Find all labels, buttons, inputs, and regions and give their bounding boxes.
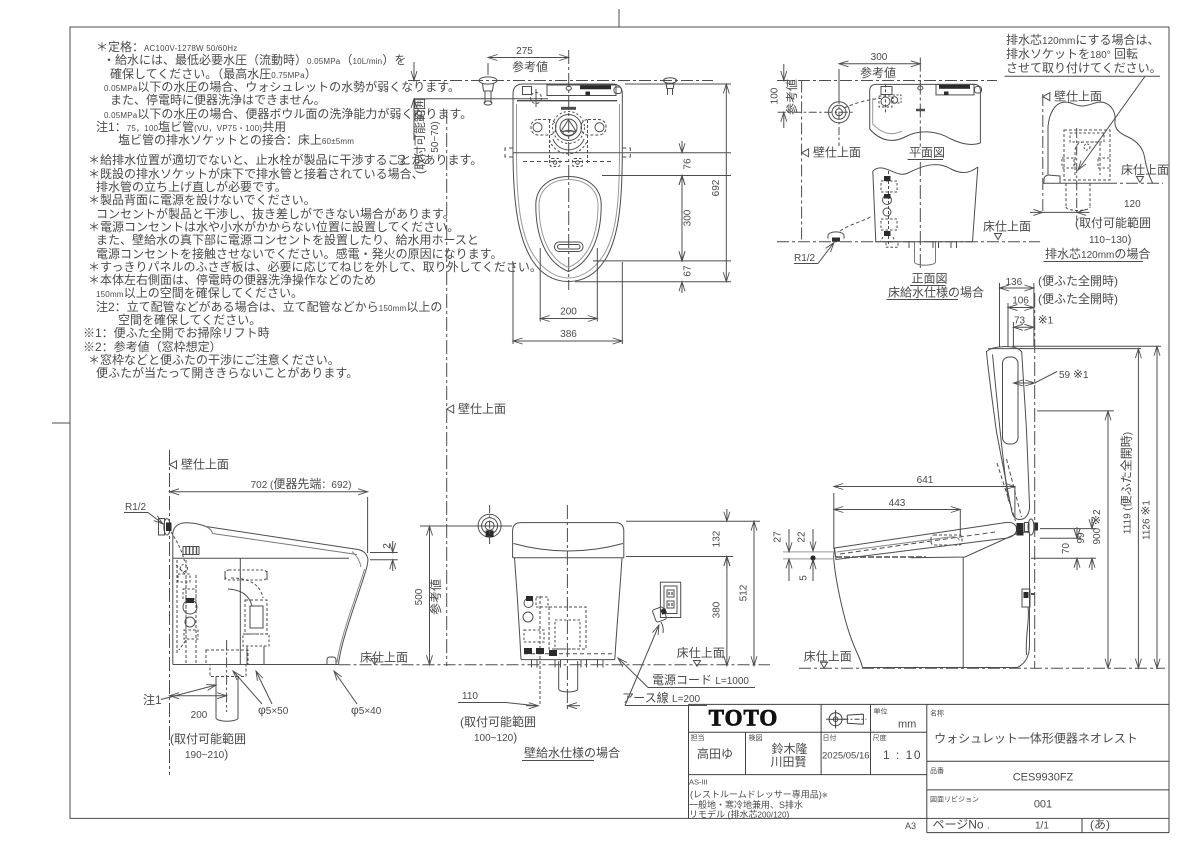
svg-text:(あ): (あ)	[1090, 818, 1110, 832]
svg-text:190~210): 190~210)	[185, 747, 228, 761]
svg-text:100~120): 100~120)	[474, 730, 517, 744]
svg-text:70: 70	[1061, 543, 1072, 555]
svg-text:50~70): 50~70)	[430, 121, 441, 152]
svg-text:参考値: 参考値	[428, 579, 443, 615]
svg-text:リモデル (排水芯200/120): リモデル (排水芯200/120)	[689, 809, 789, 820]
svg-text:電源コード L=1000: 電源コード L=1000	[652, 673, 749, 687]
svg-text:443: 443	[889, 498, 906, 509]
svg-text:mm: mm	[898, 719, 916, 731]
svg-text:AS-III: AS-III	[689, 778, 708, 787]
svg-text:参考値: 参考値	[512, 59, 548, 74]
svg-text:床仕上面: 床仕上面	[677, 646, 725, 660]
svg-text:2025/05/16: 2025/05/16	[822, 751, 870, 762]
svg-text:単位: 単位	[874, 707, 888, 716]
svg-text:1119 (便ふた全開時): 1119 (便ふた全開時)	[1119, 432, 1134, 534]
svg-text:品番: 品番	[930, 767, 944, 775]
svg-text:φ5×50: φ5×50	[258, 703, 289, 717]
svg-text:排水芯120mmの場合: 排水芯120mmの場合	[1045, 246, 1150, 261]
svg-text:ページNo .: ページNo .	[933, 818, 990, 832]
svg-text:A3: A3	[905, 821, 916, 831]
svg-text:TOTO: TOTO	[709, 706, 779, 731]
svg-text:500: 500	[414, 588, 425, 605]
svg-text:(レストルームドレッサー専用品)※: (レストルームドレッサー専用品)※	[690, 789, 828, 800]
svg-text:99: 99	[1076, 532, 1087, 544]
svg-text:R1/2: R1/2	[125, 502, 147, 513]
svg-text:73: 73	[1014, 316, 1026, 327]
svg-text:110~130): 110~130)	[1089, 232, 1131, 246]
svg-text:512: 512	[739, 584, 750, 601]
svg-text:27: 27	[773, 531, 784, 543]
svg-text:川田賢: 川田賢	[771, 755, 807, 769]
svg-text:(取付可能範囲: (取付可能範囲	[170, 731, 246, 746]
svg-text:5: 5	[799, 575, 810, 581]
svg-text:検図: 検図	[749, 733, 763, 742]
svg-text:図面リビジョン: 図面リビジョン	[930, 794, 979, 803]
svg-text:22: 22	[797, 531, 808, 543]
svg-text:702 (便器先端：692): 702 (便器先端：692)	[251, 477, 352, 491]
svg-text:641: 641	[917, 475, 934, 486]
svg-text:200: 200	[191, 710, 208, 721]
svg-text:200: 200	[560, 307, 577, 318]
svg-text:参考値: 参考値	[860, 65, 896, 80]
svg-text:一般地・寒冷地兼用、S排水: 一般地・寒冷地兼用、S排水	[689, 799, 803, 810]
svg-text:平面図: 平面図	[909, 146, 945, 160]
svg-text:(取付可能範囲: (取付可能範囲	[460, 714, 536, 729]
svg-text:(便ふた全開時): (便ふた全開時)	[1038, 273, 1118, 288]
svg-text:CES9930FZ: CES9930FZ	[1013, 772, 1074, 784]
svg-text:120: 120	[1124, 199, 1141, 210]
svg-text:59 ※1: 59 ※1	[1059, 367, 1089, 381]
svg-text:275: 275	[516, 46, 533, 57]
svg-text:排水ソケットを180° 回転: 排水ソケットを180° 回転	[1006, 47, 1138, 61]
svg-text:※1: ※1	[1038, 313, 1054, 327]
svg-text:鈴木隆: 鈴木隆	[772, 741, 808, 756]
svg-text:110: 110	[462, 691, 478, 702]
svg-text:尺度: 尺度	[873, 733, 887, 742]
svg-text:壁仕上面: 壁仕上面	[1054, 89, 1102, 104]
svg-text:R1/2: R1/2	[794, 253, 816, 264]
svg-text:床給水仕様の場合: 床給水仕様の場合	[888, 285, 984, 300]
svg-text:001: 001	[1034, 799, 1052, 811]
svg-text:させて取り付けてください。: させて取り付けてください。	[1006, 61, 1162, 75]
svg-text:床仕上面: 床仕上面	[804, 650, 852, 664]
svg-text:(便ふた全開時): (便ふた全開時)	[1038, 291, 1118, 306]
svg-text:900 ※2: 900 ※2	[1089, 509, 1103, 545]
svg-text:300: 300	[683, 209, 694, 226]
svg-text:67: 67	[683, 265, 694, 277]
svg-text:386: 386	[560, 329, 577, 340]
svg-text:参考値: 参考値	[784, 79, 799, 115]
svg-text:床仕上面: 床仕上面	[360, 651, 408, 665]
svg-text:アース線 L=200: アース線 L=200	[622, 690, 701, 705]
svg-text:担当: 担当	[691, 733, 705, 742]
svg-text:排水芯120mmにする場合は、: 排水芯120mmにする場合は、	[1006, 32, 1160, 47]
svg-text:壁仕上面: 壁仕上面	[813, 145, 861, 160]
svg-text:φ5×40: φ5×40	[351, 703, 382, 717]
svg-text:高田ゆ: 高田ゆ	[697, 746, 733, 761]
svg-text:壁仕上面: 壁仕上面	[458, 401, 506, 416]
svg-text:1/1: 1/1	[1035, 821, 1049, 832]
svg-text:136: 136	[1006, 277, 1023, 288]
svg-text:380: 380	[712, 601, 723, 618]
svg-text:1126 ※1: 1126 ※1	[1139, 500, 1153, 540]
svg-text:日付: 日付	[823, 733, 837, 742]
svg-text:床仕上面: 床仕上面	[1121, 163, 1169, 177]
svg-text:壁仕上面: 壁仕上面	[181, 457, 229, 472]
svg-text:2: 2	[382, 543, 393, 549]
svg-text:1 : 10: 1 : 10	[883, 748, 922, 762]
svg-text:注1: 注1	[143, 692, 162, 707]
svg-text:正面図: 正面図	[912, 272, 948, 286]
svg-text:692: 692	[711, 179, 722, 196]
svg-text:106: 106	[1012, 296, 1029, 307]
svg-text:(取付可能範囲: (取付可能範囲	[1075, 215, 1151, 230]
svg-text:壁給水仕様の場合: 壁給水仕様の場合	[524, 745, 620, 760]
svg-text:ウォシュレット一体形便器ネオレスト: ウォシュレット一体形便器ネオレスト	[934, 732, 1138, 746]
svg-text:100: 100	[770, 87, 781, 104]
svg-text:300: 300	[871, 52, 888, 63]
svg-text:名称: 名称	[930, 709, 944, 718]
svg-text:床仕上面: 床仕上面	[983, 220, 1031, 234]
svg-text:132: 132	[712, 530, 723, 547]
svg-text:76: 76	[683, 158, 694, 170]
